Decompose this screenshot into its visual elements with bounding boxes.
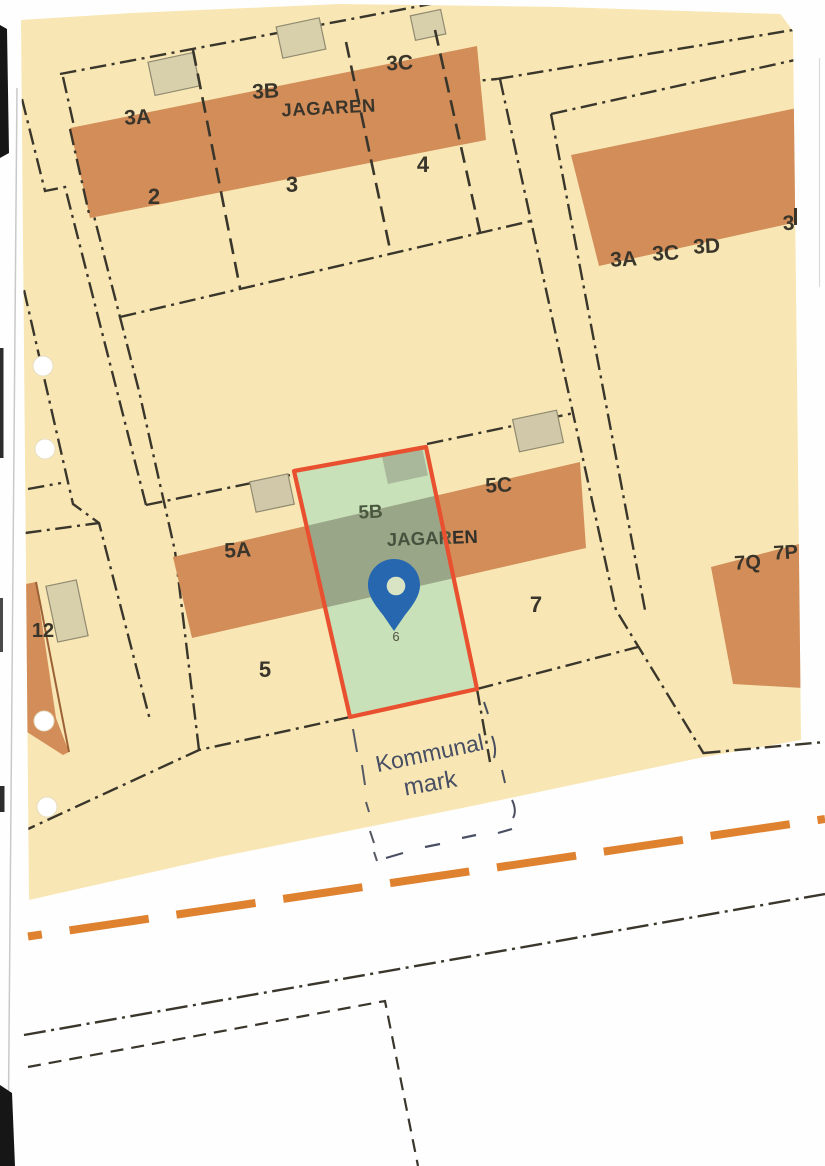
svg-text:3A: 3A — [610, 247, 638, 271]
svg-text:3D: 3D — [693, 234, 721, 258]
svg-text:12: 12 — [32, 620, 54, 642]
svg-text:5B: 5B — [358, 501, 383, 523]
svg-text:5: 5 — [259, 657, 271, 682]
svg-text:5A: 5A — [224, 538, 252, 562]
svg-text:3C: 3C — [652, 241, 680, 265]
svg-text:3A: 3A — [124, 105, 152, 129]
svg-text:7: 7 — [530, 592, 542, 617]
svg-text:3: 3 — [782, 212, 795, 236]
svg-text:5C: 5C — [485, 473, 513, 497]
svg-text:3C: 3C — [386, 51, 414, 75]
svg-text:JAGAREN: JAGAREN — [386, 526, 478, 550]
svg-text:7Q: 7Q — [734, 551, 762, 574]
svg-text:7P: 7P — [773, 541, 799, 564]
svg-text:4: 4 — [417, 152, 430, 177]
svg-text:3: 3 — [286, 172, 298, 197]
svg-text:3B: 3B — [252, 79, 280, 103]
svg-text:6: 6 — [392, 629, 399, 644]
svg-text:2: 2 — [148, 184, 160, 209]
